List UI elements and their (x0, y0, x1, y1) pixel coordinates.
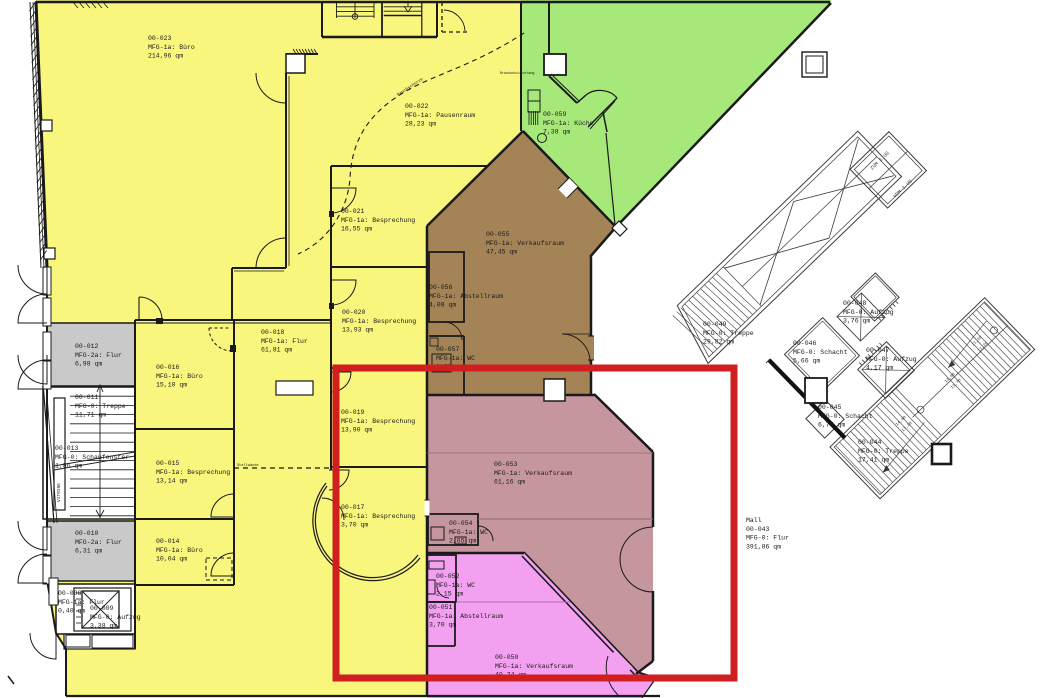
svg-text:Stellwände: Stellwände (237, 463, 259, 468)
svg-text:VITRINE: VITRINE (56, 483, 62, 502)
svg-text:Brandschutzvorhang: Brandschutzvorhang (500, 71, 535, 75)
